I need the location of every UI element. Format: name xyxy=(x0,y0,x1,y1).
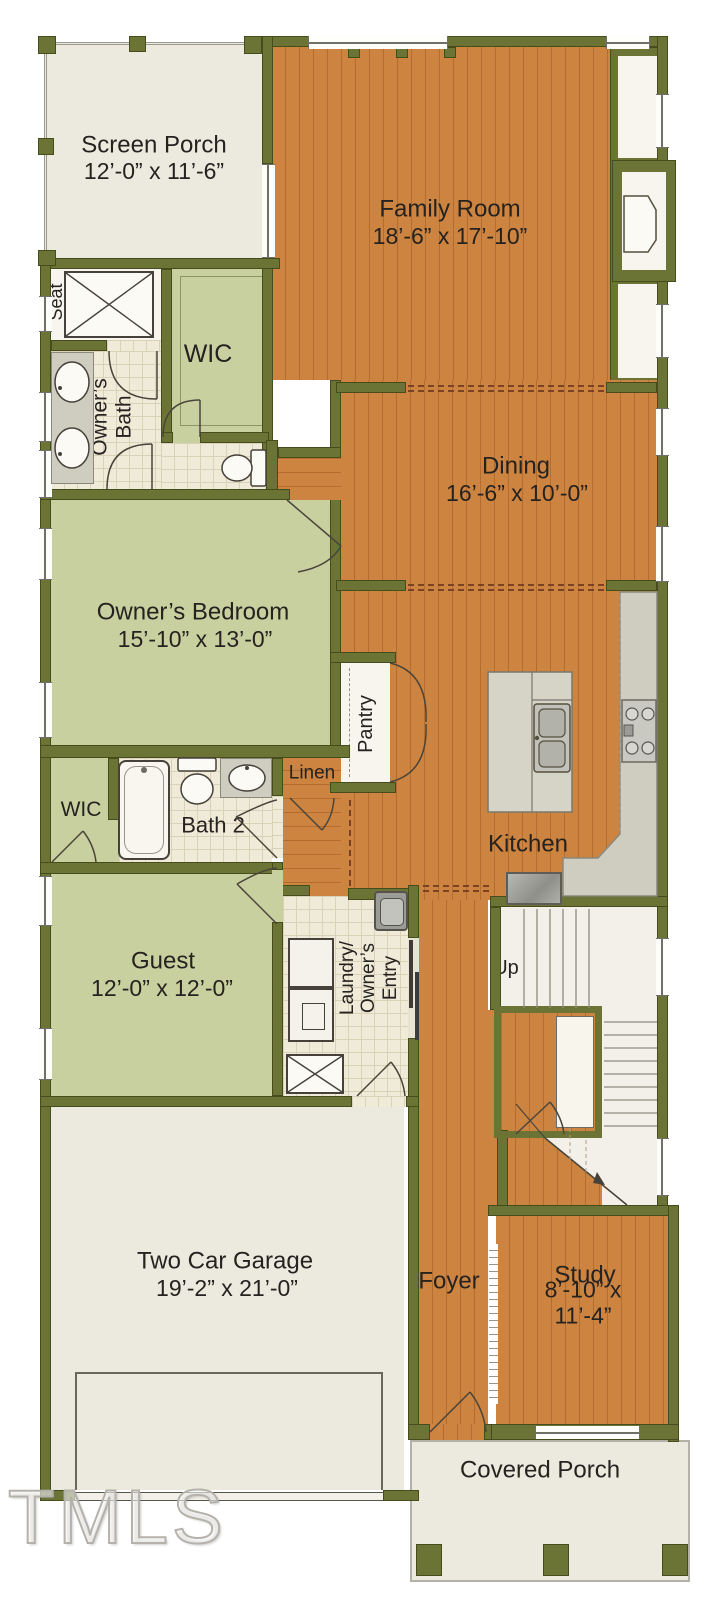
stair-treads-lower xyxy=(604,1022,657,1126)
kitchen-island xyxy=(488,672,572,812)
door-bath2 xyxy=(236,800,277,858)
door-front xyxy=(430,1392,486,1432)
door-wic-top xyxy=(163,400,200,437)
sliding-door-panel xyxy=(409,940,413,1008)
stair-treads-upper xyxy=(524,909,589,1008)
stove-icon xyxy=(622,700,656,762)
stair-diagonal xyxy=(516,1104,657,1205)
tmls-watermark: TMLS xyxy=(8,1474,227,1561)
door-owners-bedroom xyxy=(287,500,341,572)
owners-bath-toilet xyxy=(222,450,266,486)
closet-x-icon xyxy=(288,1056,342,1092)
floor-plan: Screen Porch 12’-0” x 11’-6” Family Room… xyxy=(0,0,720,1608)
owners-bath-sinks xyxy=(55,362,89,468)
shower-x-icon xyxy=(66,273,152,336)
door-wic2 xyxy=(52,831,96,862)
door-linen xyxy=(290,798,334,830)
sliding-door-panel xyxy=(415,972,419,1040)
detail-overlay xyxy=(0,0,720,1608)
tub-faucet xyxy=(141,767,147,773)
dashed-opening-lines xyxy=(350,386,606,891)
door-bath-lower xyxy=(107,444,152,489)
door-understairs xyxy=(516,1102,564,1134)
door-garage-entry xyxy=(357,1062,405,1096)
fireplace-icon xyxy=(624,196,656,252)
door-guest xyxy=(237,868,277,924)
door-pantry-double xyxy=(390,663,426,782)
door-shower xyxy=(109,351,157,399)
bath2-toilet xyxy=(178,758,216,804)
bath2-sink xyxy=(229,765,265,791)
